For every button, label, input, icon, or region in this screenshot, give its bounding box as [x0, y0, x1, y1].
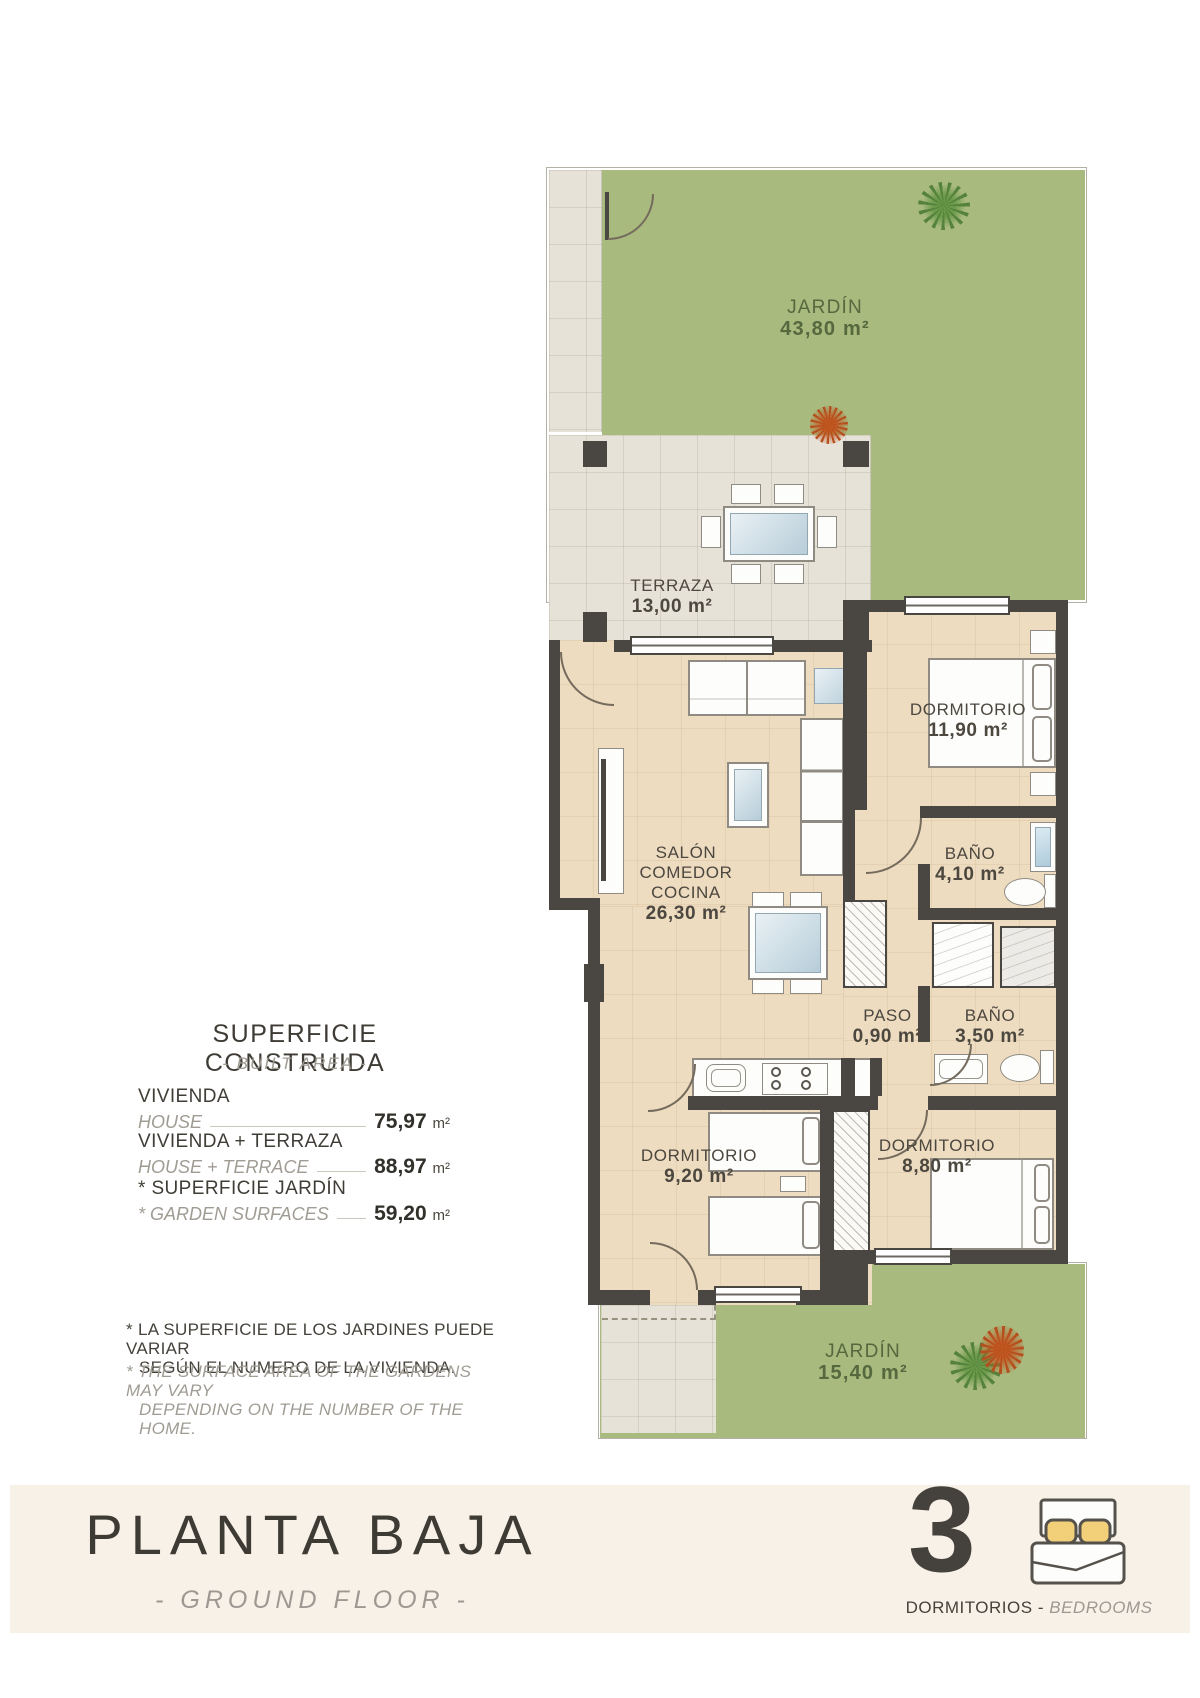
label-dormitorio-3: DORMITORIO 8,80 m²: [872, 1136, 1002, 1177]
label-garden-bottom: JARDÍN 15,40 m²: [783, 1342, 943, 1383]
plant-palm: [918, 182, 970, 230]
dashed-boundary: [602, 1318, 716, 1320]
label-dormitorio-1: DORMITORIO 11,90 m²: [898, 700, 1038, 741]
wall-pillar: [584, 964, 604, 1002]
dashed-boundary: [714, 1305, 716, 1320]
terrace-chair: [817, 516, 837, 548]
terrace-chair: [701, 516, 721, 548]
wall: [549, 640, 560, 906]
nightstand: [780, 1176, 806, 1192]
room-name: SALÓN: [616, 843, 756, 863]
burner: [801, 1080, 811, 1090]
room-area: 13,00 m²: [612, 597, 732, 617]
label-paso: PASO 0,90 m²: [845, 1006, 930, 1047]
bedrooms-label-es: DORMITORIOS: [906, 1598, 1033, 1617]
window: [630, 636, 774, 655]
wall: [1056, 600, 1068, 1264]
room-area: 11,90 m²: [898, 721, 1038, 741]
room-area: 0,90 m²: [845, 1027, 930, 1047]
dining-table: [748, 906, 828, 980]
room-name: DORMITORIO: [898, 700, 1038, 720]
row-label-es: VIVIENDA: [138, 1086, 450, 1108]
terrace-table: [723, 506, 815, 562]
window: [874, 1248, 952, 1265]
wall: [614, 640, 630, 652]
terrace-chair: [774, 564, 804, 584]
room-area: 15,40 m²: [783, 1363, 943, 1383]
floor-subtitle: - GROUND FLOOR -: [40, 1586, 585, 1615]
pillar: [843, 612, 869, 642]
nightstand: [1030, 630, 1056, 654]
wall: [867, 600, 904, 612]
label-bano-2: BAÑO 3,50 m²: [930, 1006, 1050, 1047]
row-label-en: HOUSE: [138, 1112, 210, 1133]
toilet-tank: [1040, 1050, 1054, 1084]
bedrooms-label-en: BEDROOMS: [1049, 1598, 1152, 1617]
bedrooms-separator: -: [1038, 1598, 1044, 1617]
row-value: 59,20 m²: [366, 1202, 450, 1226]
window: [714, 1286, 802, 1303]
shower-cabin: [1000, 926, 1056, 988]
wall: [820, 1110, 832, 1305]
floor-title: PLANTA BAJA: [40, 1502, 585, 1567]
pillar: [843, 441, 869, 467]
tv-screen: [601, 759, 606, 881]
entrance-path: [549, 170, 602, 432]
burner: [771, 1067, 781, 1077]
kitchen-hob: [762, 1063, 828, 1095]
area-row-garden: * SUPERFICIE JARDÍN * GARDEN SURFACES 59…: [138, 1178, 450, 1220]
wall: [920, 806, 1056, 818]
window: [904, 596, 1010, 615]
burner: [771, 1080, 781, 1090]
shower-cabin: [932, 922, 994, 988]
wall: [843, 810, 855, 902]
room-name: DORMITORIO: [634, 1146, 764, 1166]
room-name: PASO: [845, 1006, 930, 1026]
pillow: [1034, 1206, 1050, 1244]
coffee-table: [727, 762, 769, 828]
terrace-chair: [731, 564, 761, 584]
nightstand: [1030, 772, 1056, 796]
wall: [832, 1252, 868, 1305]
wall: [588, 1290, 650, 1305]
area-row-house: VIVIENDA HOUSE 75,97 m²: [138, 1086, 450, 1128]
bedrooms-caption: DORMITORIOS - BEDROOMS: [898, 1598, 1160, 1618]
pillow: [1034, 1164, 1050, 1202]
washbasin: [1030, 822, 1056, 872]
footnote-en: * THE SURFACE AREA OF THE GARDENS MAY VA…: [126, 1362, 506, 1438]
label-bano-1: BAÑO 4,10 m²: [910, 844, 1030, 885]
label-dormitorio-2: DORMITORIO 9,20 m²: [634, 1146, 764, 1187]
room-name: JARDÍN: [783, 1342, 943, 1362]
wall: [870, 1058, 882, 1096]
kitchen-sink: [706, 1064, 746, 1092]
closet: [832, 1110, 870, 1252]
room-area: 26,30 m²: [616, 904, 756, 924]
sofa-chaise: [800, 718, 844, 876]
floor-plan: JARDÍN 43,80 m² TERRAZA 13,00 m² SALÓN C…: [0, 0, 1200, 1460]
label-terraza: TERRAZA 13,00 m²: [612, 576, 732, 617]
bedrooms-count: 3: [908, 1468, 976, 1590]
terrace-chair: [731, 484, 761, 504]
wall: [841, 1058, 855, 1098]
row-label-en: HOUSE + TERRACE: [138, 1157, 317, 1178]
bed-icon: [1014, 1496, 1142, 1592]
row-label-es: VIVIENDA + TERRAZA: [138, 1131, 450, 1153]
room-name: COMEDOR: [616, 863, 756, 883]
room-area: 3,50 m²: [930, 1027, 1050, 1047]
row-value: 88,97 m²: [366, 1155, 450, 1179]
closet: [843, 900, 887, 988]
room-name: COCINA: [616, 883, 756, 903]
area-row-house-terrace: VIVIENDA + TERRAZA HOUSE + TERRACE 88,97…: [138, 1131, 450, 1173]
room-area: 9,20 m²: [634, 1167, 764, 1187]
sofa: [688, 660, 806, 716]
row-label-es: * SUPERFICIE JARDÍN: [138, 1178, 450, 1200]
basin-bowl: [1035, 827, 1051, 867]
wall: [918, 908, 1056, 920]
room-area: 8,80 m²: [872, 1157, 1002, 1177]
terrace-chair: [774, 484, 804, 504]
built-area-subtitle: - BUILT AREA -: [122, 1054, 468, 1074]
wall: [688, 1096, 878, 1110]
wall: [928, 1096, 1068, 1110]
room-name: BAÑO: [910, 844, 1030, 864]
pillar: [583, 441, 607, 467]
plant-bush: [810, 406, 848, 444]
pillow: [802, 1117, 820, 1165]
toilet-bowl: [1000, 1054, 1040, 1082]
room-name: BAÑO: [930, 1006, 1050, 1026]
burner: [801, 1067, 811, 1077]
pillar: [583, 612, 607, 642]
sink-basin: [711, 1069, 741, 1087]
row-label-en: * GARDEN SURFACES: [138, 1204, 337, 1225]
label-salon: SALÓN COMEDOR COCINA 26,30 m²: [616, 843, 756, 924]
label-garden-top: JARDÍN 43,80 m²: [745, 298, 905, 339]
room-name: JARDÍN: [745, 298, 905, 318]
pillow: [802, 1201, 820, 1249]
room-area: 4,10 m²: [910, 865, 1030, 885]
back-path: [601, 1305, 716, 1433]
room-area: 43,80 m²: [745, 319, 905, 339]
room-name: TERRAZA: [612, 576, 732, 596]
room-name: DORMITORIO: [872, 1136, 1002, 1156]
plant-bush: [980, 1326, 1024, 1374]
